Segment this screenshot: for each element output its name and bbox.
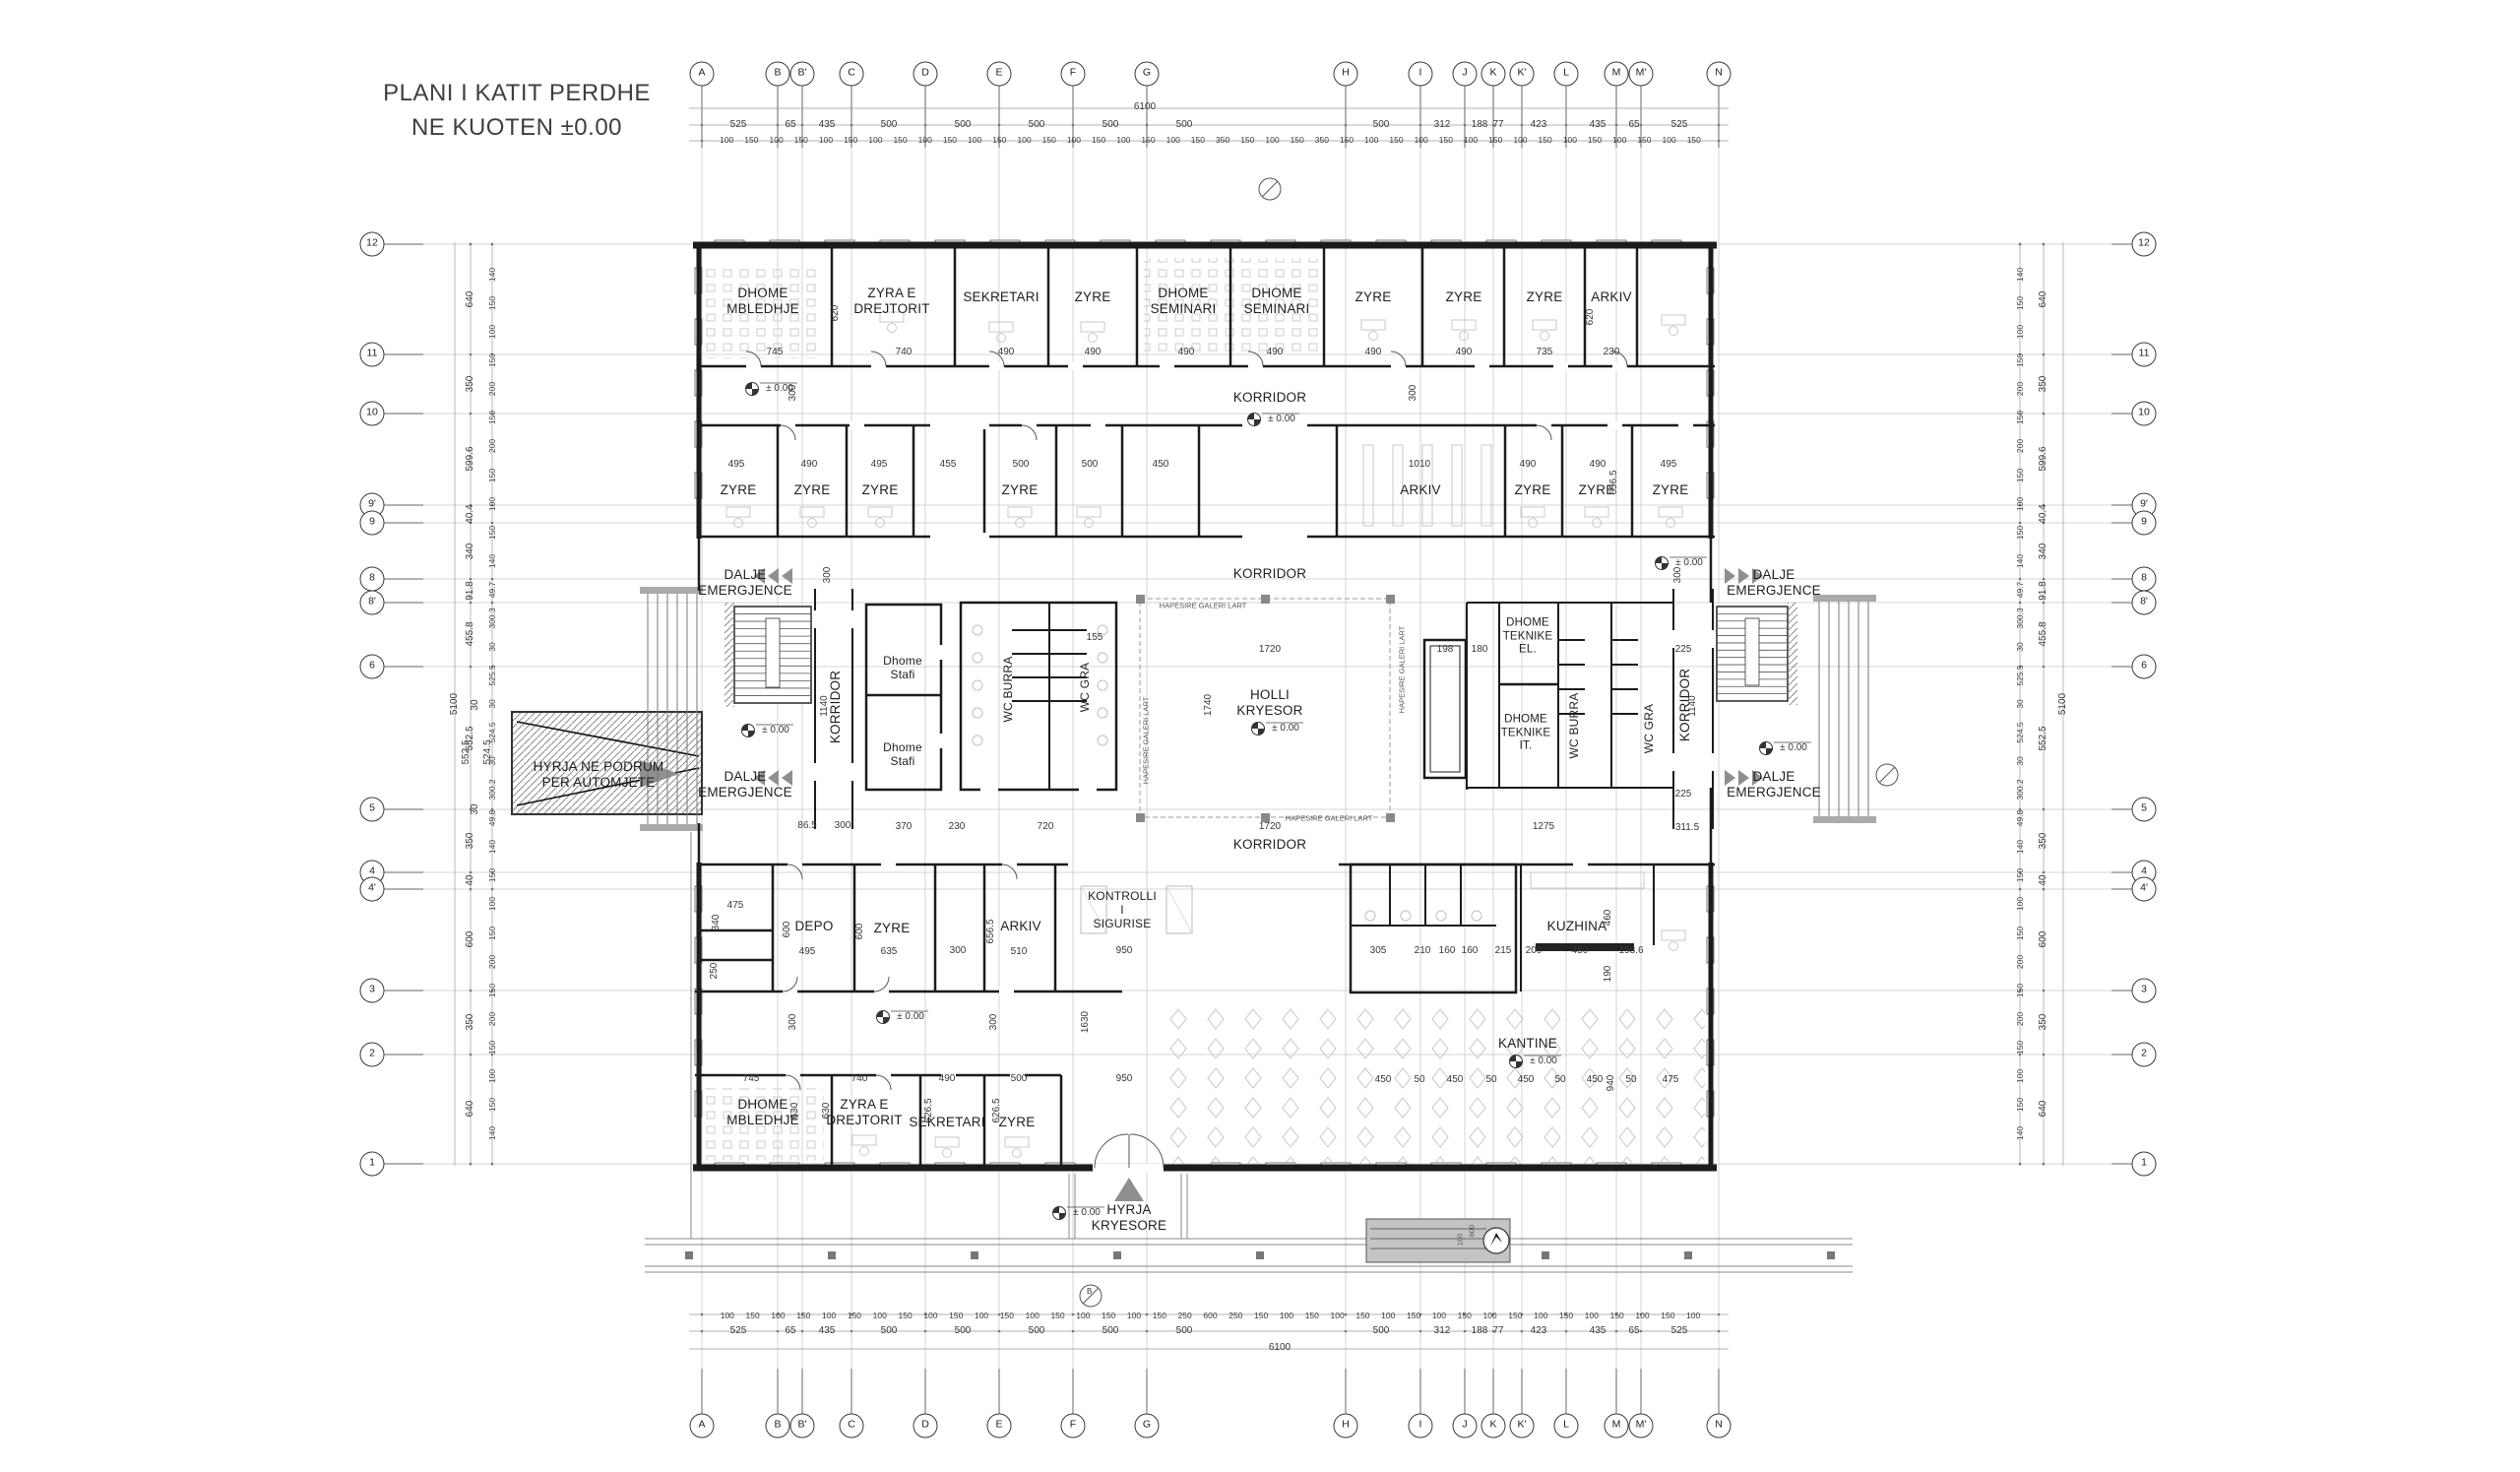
level-marker-icon (1252, 723, 1304, 736)
svg-text:B: B (1087, 1287, 1092, 1296)
stair-wall-hatch (1788, 603, 1797, 705)
main-entrance-arrow-icon (1114, 1178, 1144, 1201)
floor-plan-sheet: B PLANI I KATIT PERDHE NE KUOTEN ±0.00 A… (0, 0, 2520, 1472)
title-line-2: NE KUOTEN ±0.00 (354, 111, 679, 146)
basement-ramp (512, 712, 702, 814)
level-marker-icon (1760, 742, 1812, 755)
level-marker-icon (877, 1011, 929, 1024)
emergency-exit-arrows-icon (754, 568, 792, 584)
stair-wall-hatch (724, 603, 734, 707)
level-marker-icon (746, 383, 798, 396)
section-marker-icon (1259, 178, 1281, 200)
entrance-ramp (1366, 1219, 1510, 1262)
drawing-title: PLANI I KATIT PERDHE NE KUOTEN ±0.00 (354, 77, 679, 146)
kantine-tables (1162, 1000, 1705, 1166)
canopy-columns (685, 1251, 1835, 1259)
level-marker-icon (1053, 1207, 1105, 1220)
title-line-1: PLANI I KATIT PERDHE (354, 77, 679, 111)
section-marker-icon: B (1080, 1285, 1102, 1307)
emergency-exit-arrows-icon (754, 770, 792, 786)
emergency-exit-arrows-icon (1725, 770, 1763, 786)
section-marker-icon (1876, 764, 1898, 786)
level-marker-icon (1656, 557, 1708, 570)
level-marker-icon (742, 725, 794, 737)
plan-drawing: B (0, 0, 2520, 1472)
gallery-outline (1136, 595, 1395, 822)
emergency-exit-arrows-icon (1725, 568, 1763, 584)
right-colonnade (1813, 595, 1876, 823)
